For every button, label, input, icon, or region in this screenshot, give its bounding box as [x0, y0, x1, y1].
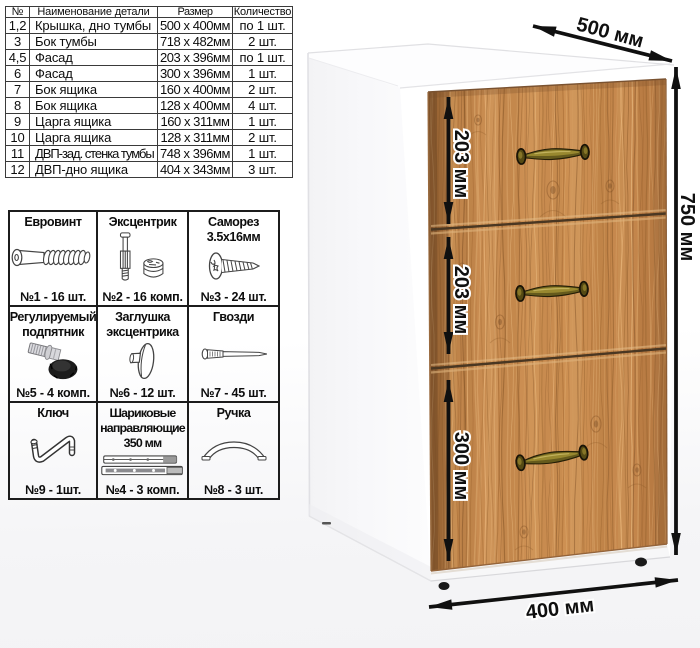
svg-text:750 мм: 750 мм	[676, 193, 698, 262]
svg-text:400 мм: 400 мм	[525, 594, 596, 624]
svg-text:300 мм: 300 мм	[450, 432, 472, 501]
svg-text:203 мм: 203 мм	[450, 130, 472, 199]
svg-text:203 мм: 203 мм	[450, 266, 472, 335]
